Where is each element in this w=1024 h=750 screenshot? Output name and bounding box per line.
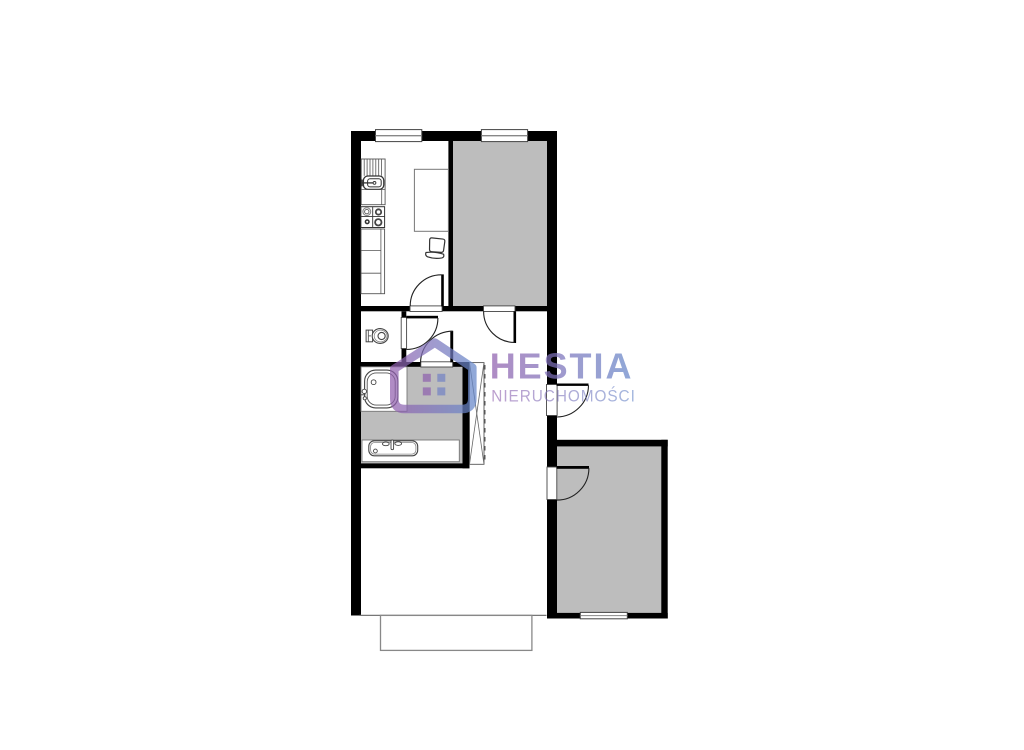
svg-text:NIERUCHOMOŚCI: NIERUCHOMOŚCI [491,386,636,405]
svg-text:HESTIA: HESTIA [490,346,634,387]
